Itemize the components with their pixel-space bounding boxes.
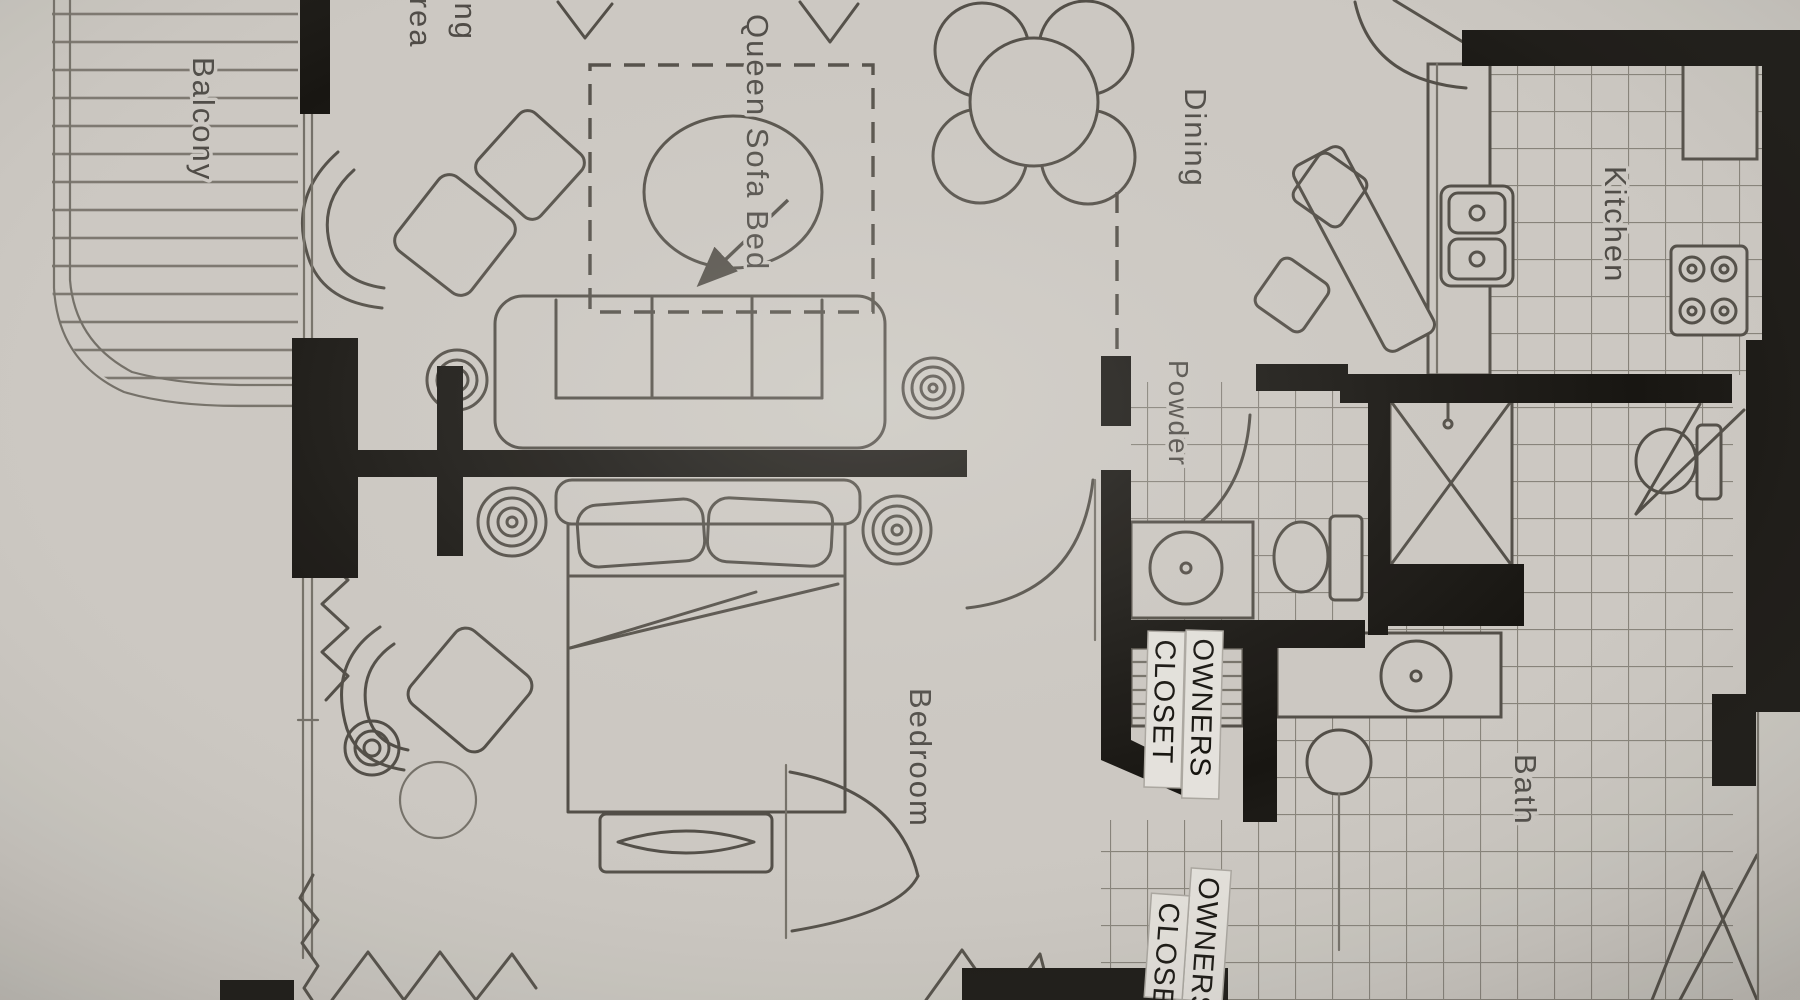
floor-plan-drawing: Balcony Living Area Queen Sofa Bed Dinin… xyxy=(0,0,1800,1000)
photo-grain xyxy=(0,0,1800,1000)
floor-plan-photo: Balcony Living Area Queen Sofa Bed Dinin… xyxy=(0,0,1800,1000)
